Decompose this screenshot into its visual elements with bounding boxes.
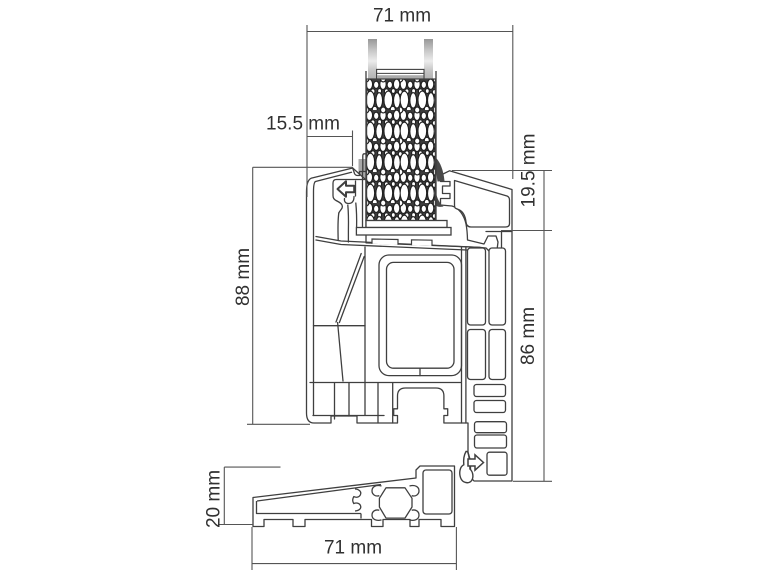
svg-text:71 mm: 71 mm (373, 6, 431, 27)
svg-text:88 mm: 88 mm (233, 248, 254, 306)
svg-text:15.5 mm: 15.5 mm (266, 114, 340, 135)
svg-text:19.5 mm: 19.5 mm (519, 134, 540, 208)
svg-text:71 mm: 71 mm (324, 538, 382, 559)
svg-text:20 mm: 20 mm (204, 470, 225, 528)
svg-text:86 mm: 86 mm (518, 307, 539, 365)
